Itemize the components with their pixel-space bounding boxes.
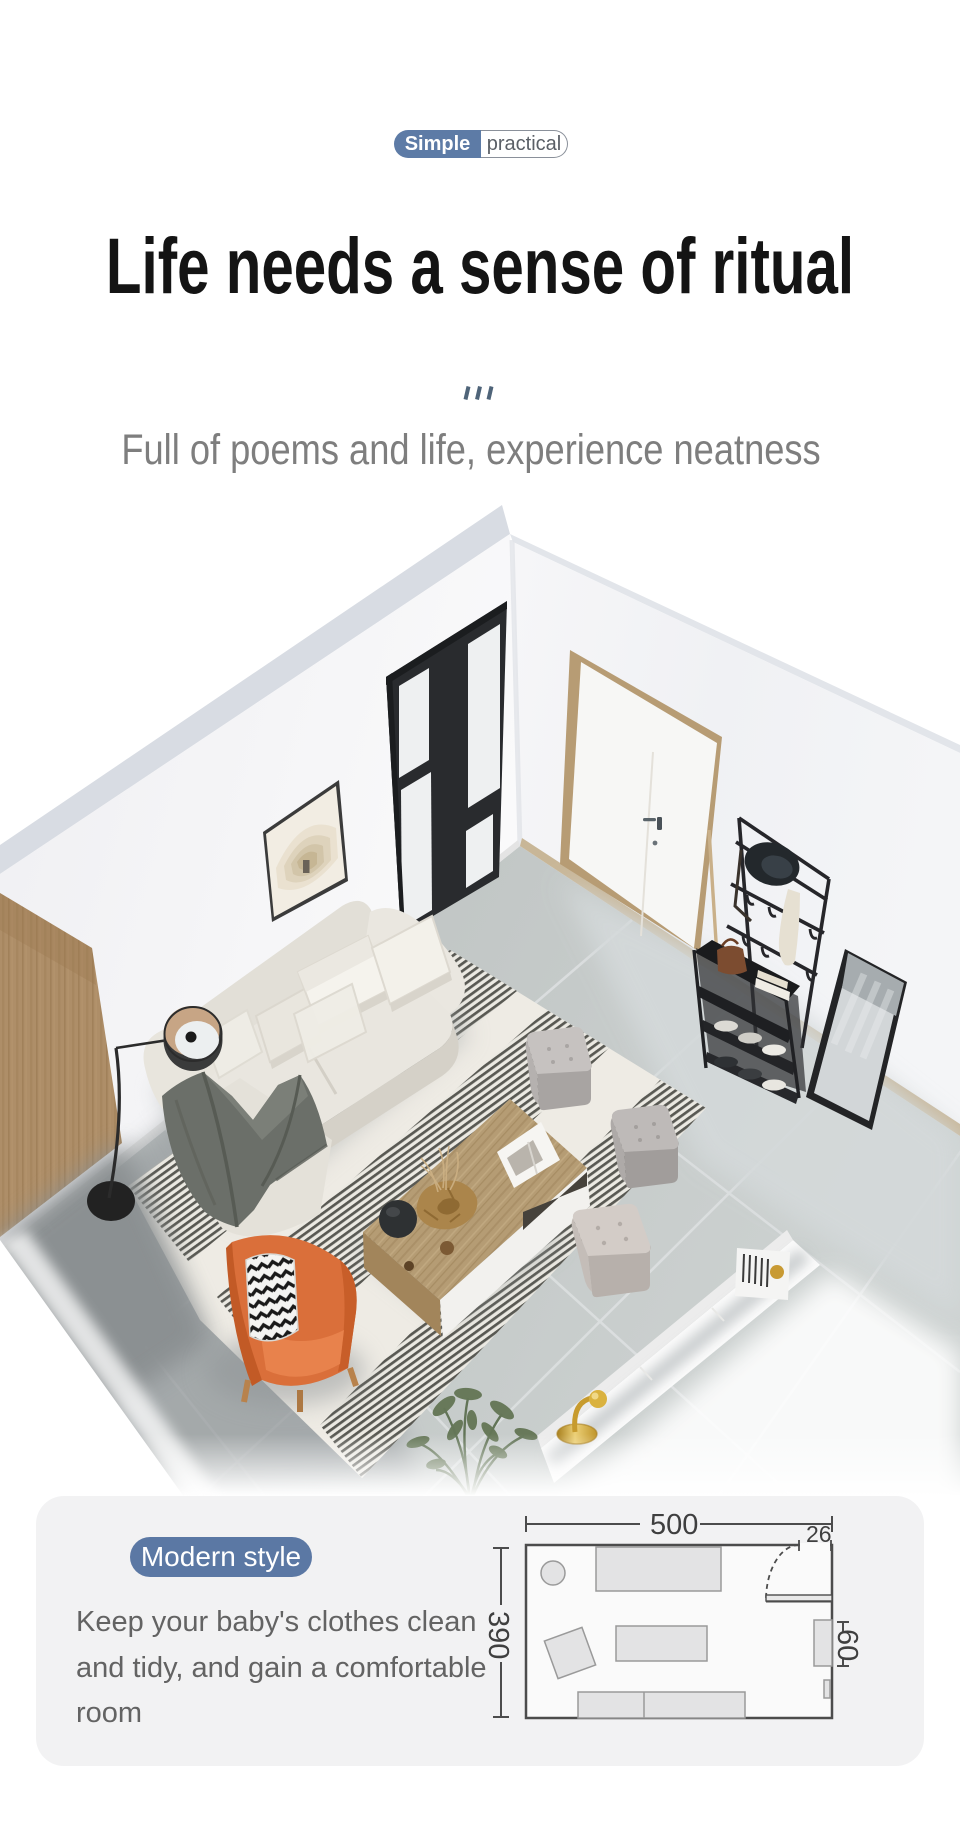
- svg-text:60: 60: [831, 1629, 863, 1661]
- svg-text:390: 390: [482, 1611, 514, 1659]
- svg-text:500: 500: [650, 1509, 698, 1541]
- svg-text:26: 26: [806, 1521, 832, 1547]
